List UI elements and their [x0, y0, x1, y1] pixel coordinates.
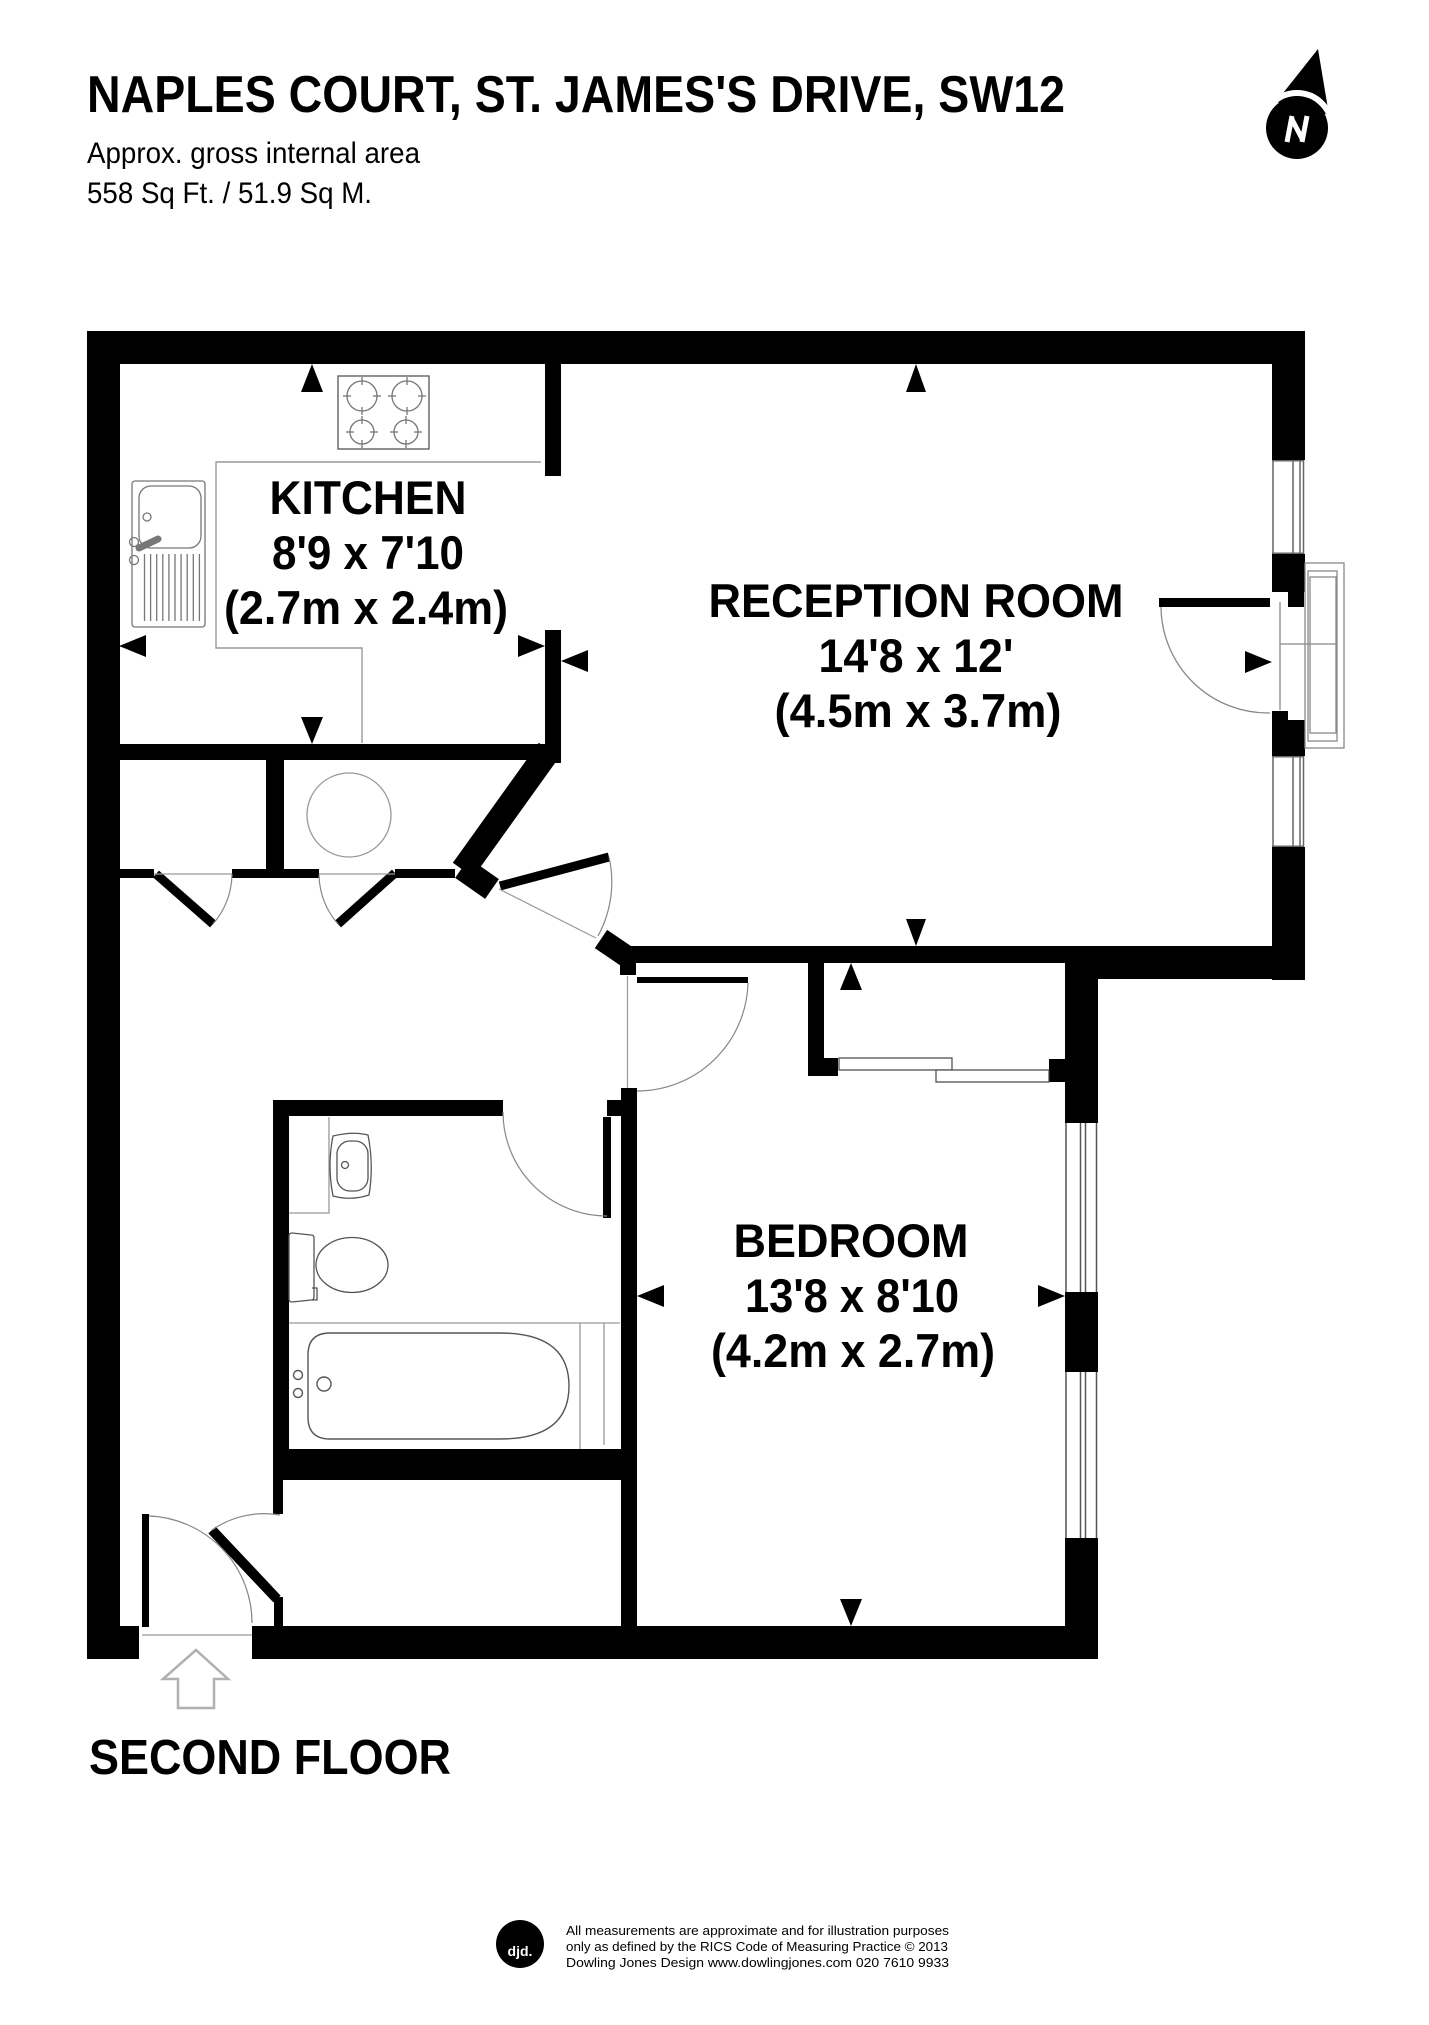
svg-text:13'8 x 8'10: 13'8 x 8'10	[745, 1269, 959, 1322]
svg-text:(2.7m x 2.4m): (2.7m x 2.4m)	[224, 581, 508, 634]
svg-text:14'8 x 12': 14'8 x 12'	[819, 629, 1014, 682]
svg-text:BEDROOM: BEDROOM	[734, 1214, 969, 1267]
svg-text:RECEPTION ROOM: RECEPTION ROOM	[709, 574, 1124, 627]
svg-text:SECOND FLOOR: SECOND FLOOR	[89, 1731, 451, 1785]
svg-text:8'9 x 7'10: 8'9 x 7'10	[272, 526, 464, 579]
svg-text:558 Sq Ft. / 51.9 Sq M.: 558 Sq Ft. / 51.9 Sq M.	[87, 177, 372, 210]
svg-text:Dowling Jones Design www.dowli: Dowling Jones Design www.dowlingjones.co…	[566, 1956, 949, 1970]
svg-text:(4.5m x 3.7m): (4.5m x 3.7m)	[775, 684, 1062, 737]
svg-text:djd.: djd.	[508, 1943, 533, 1959]
svg-text:only as defined by the RICS Co: only as defined by the RICS Code of Meas…	[566, 1940, 948, 1954]
svg-text:(4.2m x 2.7m): (4.2m x 2.7m)	[711, 1324, 995, 1377]
svg-text:Approx. gross internal area: Approx. gross internal area	[87, 137, 420, 170]
svg-text:KITCHEN: KITCHEN	[270, 471, 467, 524]
svg-text:All measurements are approxima: All measurements are approximate and for…	[566, 1924, 949, 1938]
svg-text:NAPLES COURT, ST. JAMES'S DRIV: NAPLES COURT, ST. JAMES'S DRIVE, SW12	[87, 66, 1065, 124]
